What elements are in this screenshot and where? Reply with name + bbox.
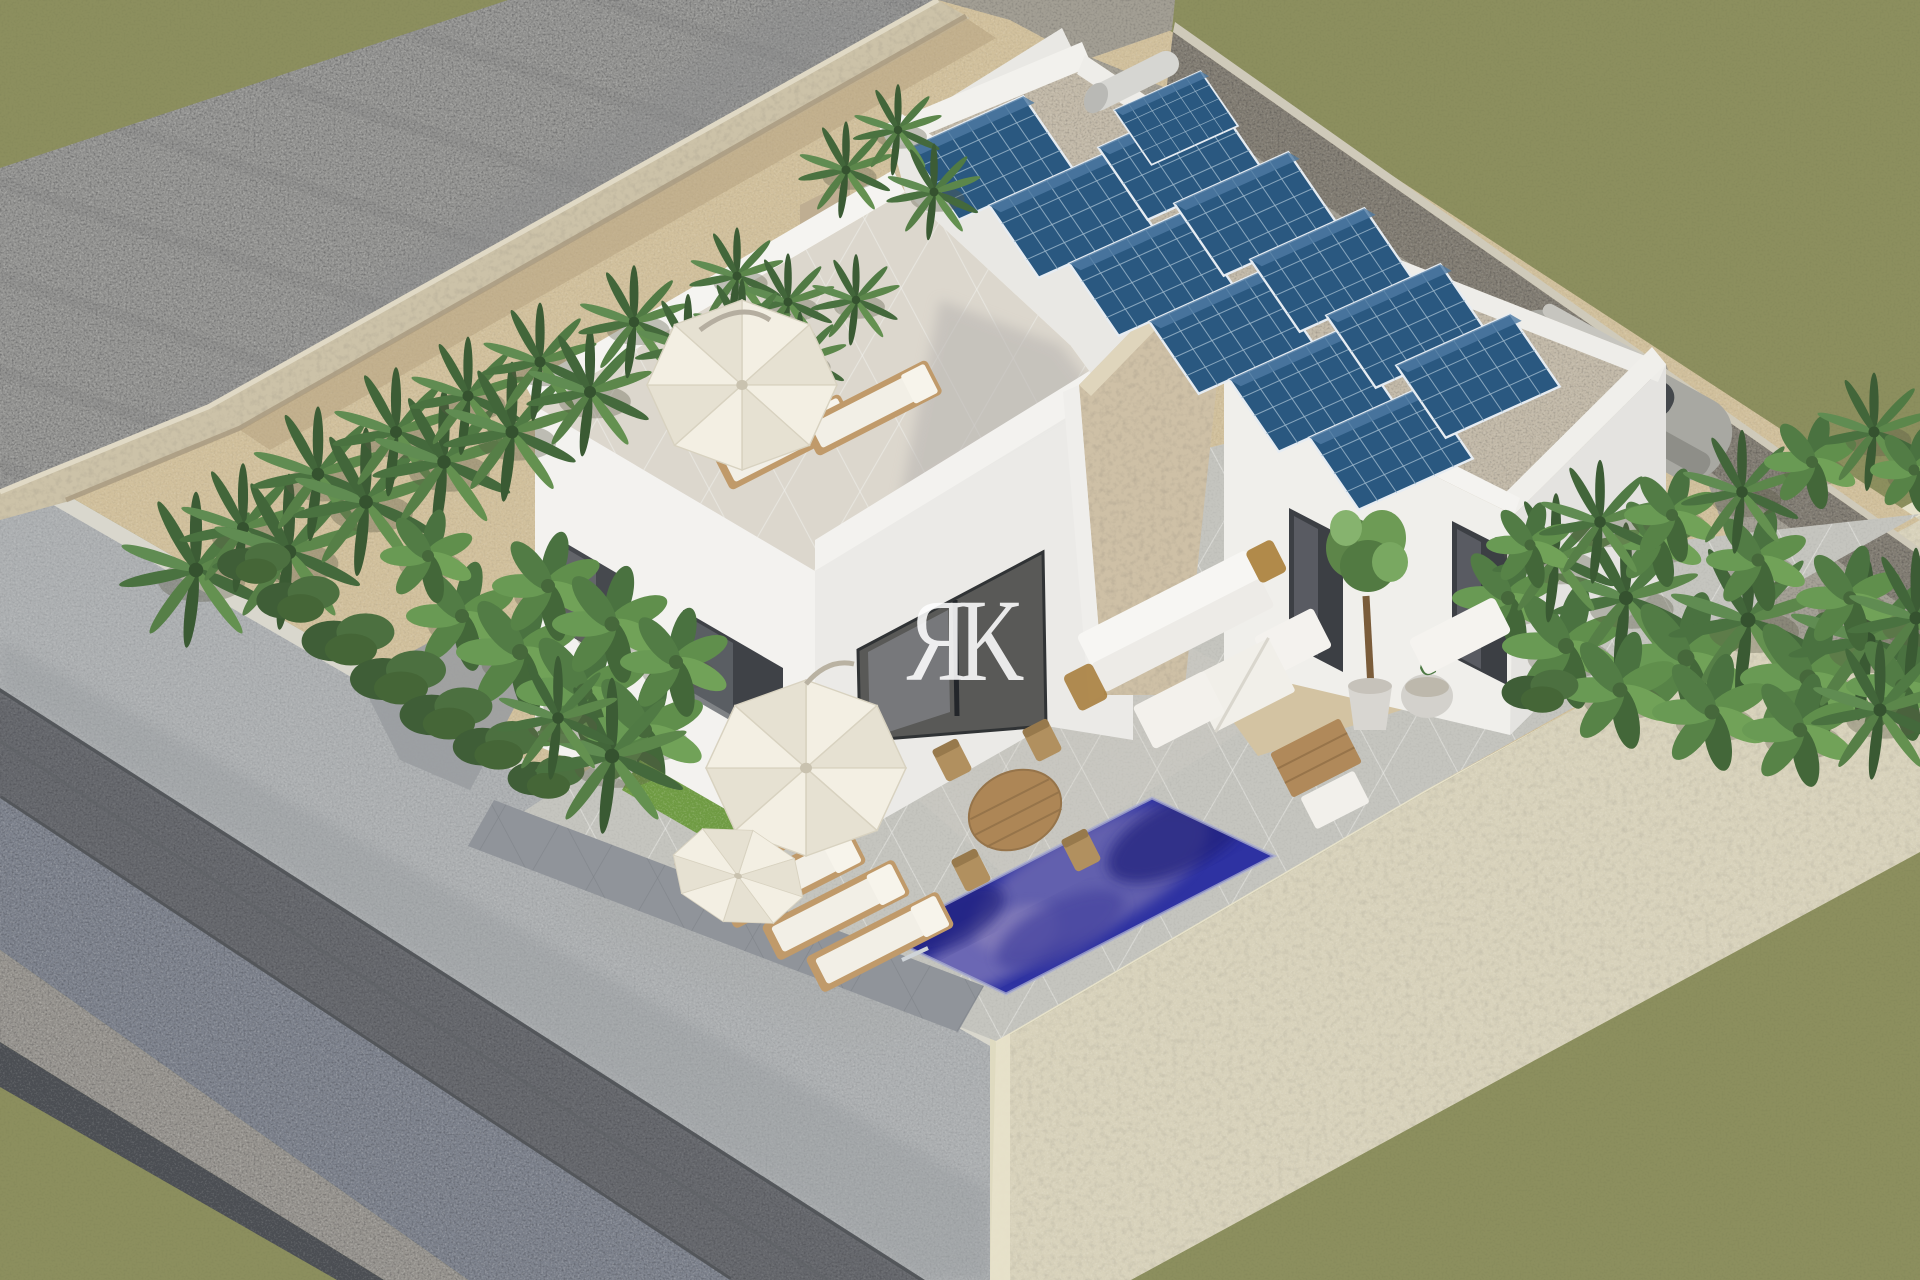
svg-text:K: K	[958, 575, 1024, 705]
